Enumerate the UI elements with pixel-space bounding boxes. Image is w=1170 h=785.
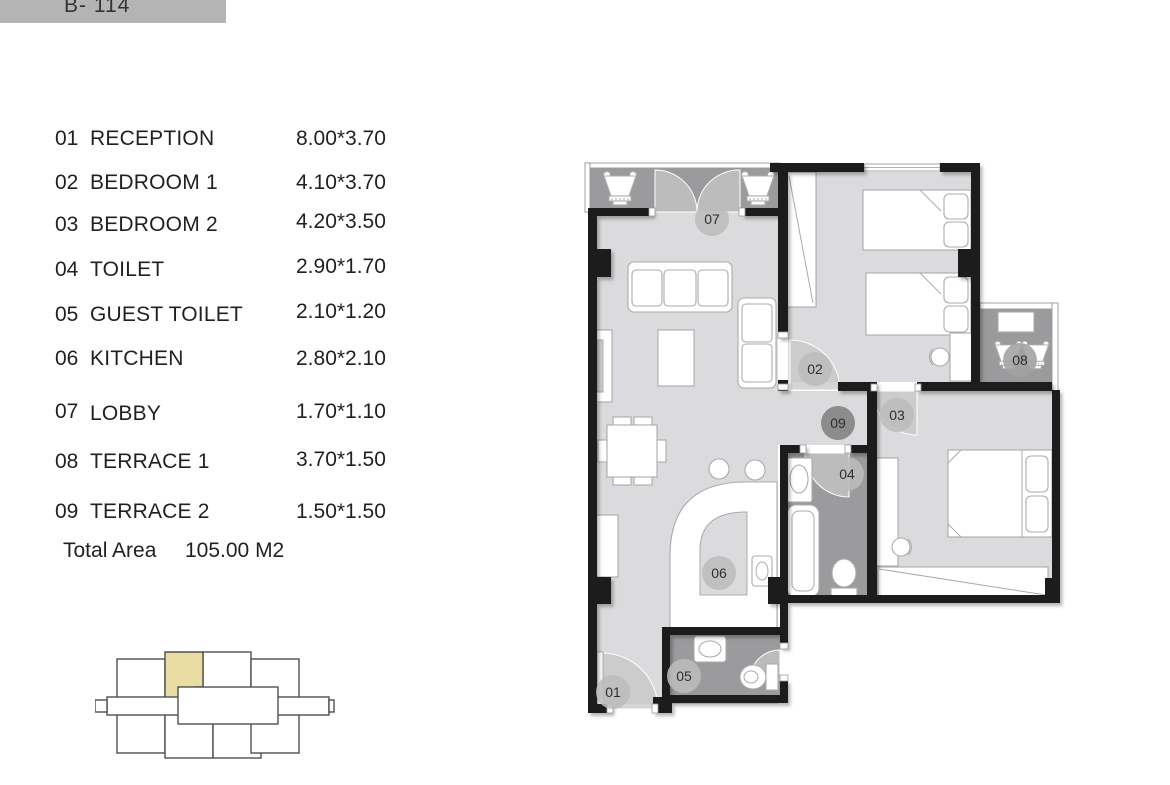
room-number: 06 bbox=[55, 347, 78, 371]
svg-text:08: 08 bbox=[1012, 352, 1028, 368]
room-marker-07: 07 bbox=[695, 202, 729, 236]
legend-row: 08 TERRACE 1 3.70*1.50 bbox=[0, 450, 440, 480]
room-number: 09 bbox=[55, 500, 78, 524]
terrace-table bbox=[998, 312, 1034, 332]
key-plan-units bbox=[95, 652, 334, 758]
room-name: LOBBY bbox=[90, 402, 161, 426]
svg-text:07: 07 bbox=[704, 211, 720, 227]
floor-plan: 01 02 03 04 05 06 bbox=[568, 148, 1073, 728]
room-name: TERRACE 1 bbox=[90, 450, 210, 474]
dining-table bbox=[598, 417, 666, 485]
total-area-label: Total Area bbox=[63, 539, 156, 563]
room-dimensions: 4.10*3.70 bbox=[296, 171, 386, 195]
room-number: 03 bbox=[55, 213, 78, 237]
room-number: 07 bbox=[55, 400, 78, 424]
legend-row: 05 GUEST TOILET 2.10*1.20 bbox=[0, 303, 440, 333]
room-number: 05 bbox=[55, 303, 78, 327]
toilet-bowl bbox=[832, 559, 856, 587]
chair bbox=[892, 538, 910, 556]
room-marker-04: 04 bbox=[830, 457, 864, 491]
svg-text:05: 05 bbox=[676, 668, 692, 684]
room-name: RECEPTION bbox=[90, 127, 214, 151]
room-number: 04 bbox=[55, 258, 78, 282]
room-dimensions: 2.80*2.10 bbox=[296, 347, 386, 371]
room-marker-05: 05 bbox=[667, 659, 701, 693]
room-marker-01: 01 bbox=[596, 675, 630, 709]
legend-row: 01 RECEPTION 8.00*3.70 bbox=[0, 127, 440, 157]
room-dimensions: 4.20*3.50 bbox=[296, 210, 386, 234]
room-name: KITCHEN bbox=[90, 347, 184, 371]
room-name: BEDROOM 1 bbox=[90, 171, 218, 195]
legend-row: 02 BEDROOM 1 4.10*3.70 bbox=[0, 171, 440, 201]
coffee-table bbox=[658, 330, 694, 386]
svg-text:09: 09 bbox=[830, 415, 846, 431]
room-marker-09: 09 bbox=[821, 406, 855, 440]
sofa bbox=[628, 262, 732, 312]
room-dimensions: 1.50*1.50 bbox=[296, 500, 386, 524]
room-marker-06: 06 bbox=[702, 556, 736, 590]
bar-stool bbox=[709, 459, 729, 479]
room-dimensions: 8.00*3.70 bbox=[296, 127, 386, 151]
svg-text:06: 06 bbox=[711, 565, 727, 581]
svg-text:03: 03 bbox=[889, 407, 905, 423]
room-marker-08: 08 bbox=[1003, 343, 1037, 377]
loveseat bbox=[738, 298, 776, 388]
total-area-value: 105.00 M2 bbox=[185, 539, 284, 563]
room-floors bbox=[588, 167, 1052, 704]
room-marker-03: 03 bbox=[880, 398, 914, 432]
bar-stool bbox=[745, 460, 765, 480]
room-number: 08 bbox=[55, 450, 78, 474]
room-number: 02 bbox=[55, 171, 78, 195]
legend-row: 04 TOILET 2.90*1.70 bbox=[0, 258, 440, 288]
legend-row: 09 TERRACE 2 1.50*1.50 bbox=[0, 500, 440, 530]
desk bbox=[950, 333, 972, 381]
legend-row: 07 LOBBY 1.70*1.10 bbox=[0, 400, 440, 430]
room-marker-02: 02 bbox=[798, 352, 832, 386]
svg-text:01: 01 bbox=[605, 684, 621, 700]
chair bbox=[931, 348, 949, 366]
room-dimensions: 1.70*1.10 bbox=[296, 400, 386, 424]
room-name: TOILET bbox=[90, 258, 164, 282]
room-dimensions: 3.70*1.50 bbox=[296, 448, 386, 472]
toilet-tank bbox=[766, 664, 778, 690]
console-table bbox=[594, 515, 618, 577]
svg-text:02: 02 bbox=[807, 361, 823, 377]
legend-row: 06 KITCHEN 2.80*2.10 bbox=[0, 347, 440, 377]
room-name: TERRACE 2 bbox=[90, 500, 210, 524]
room-number: 01 bbox=[55, 127, 78, 151]
building-key-plan bbox=[95, 640, 335, 770]
room-dimensions: 2.90*1.70 bbox=[296, 255, 386, 279]
room-name: BEDROOM 2 bbox=[90, 213, 218, 237]
flyer-page: B- 114 01 RECEPTION 8.00*3.70 02 BEDROOM… bbox=[0, 0, 1170, 785]
room-dimensions: 2.10*1.20 bbox=[296, 300, 386, 324]
legend-row: 03 BEDROOM 2 4.20*3.50 bbox=[0, 213, 440, 243]
room-legend: 01 RECEPTION 8.00*3.70 02 BEDROOM 1 4.10… bbox=[0, 0, 440, 600]
svg-text:04: 04 bbox=[839, 466, 855, 482]
room-name: GUEST TOILET bbox=[90, 303, 243, 327]
